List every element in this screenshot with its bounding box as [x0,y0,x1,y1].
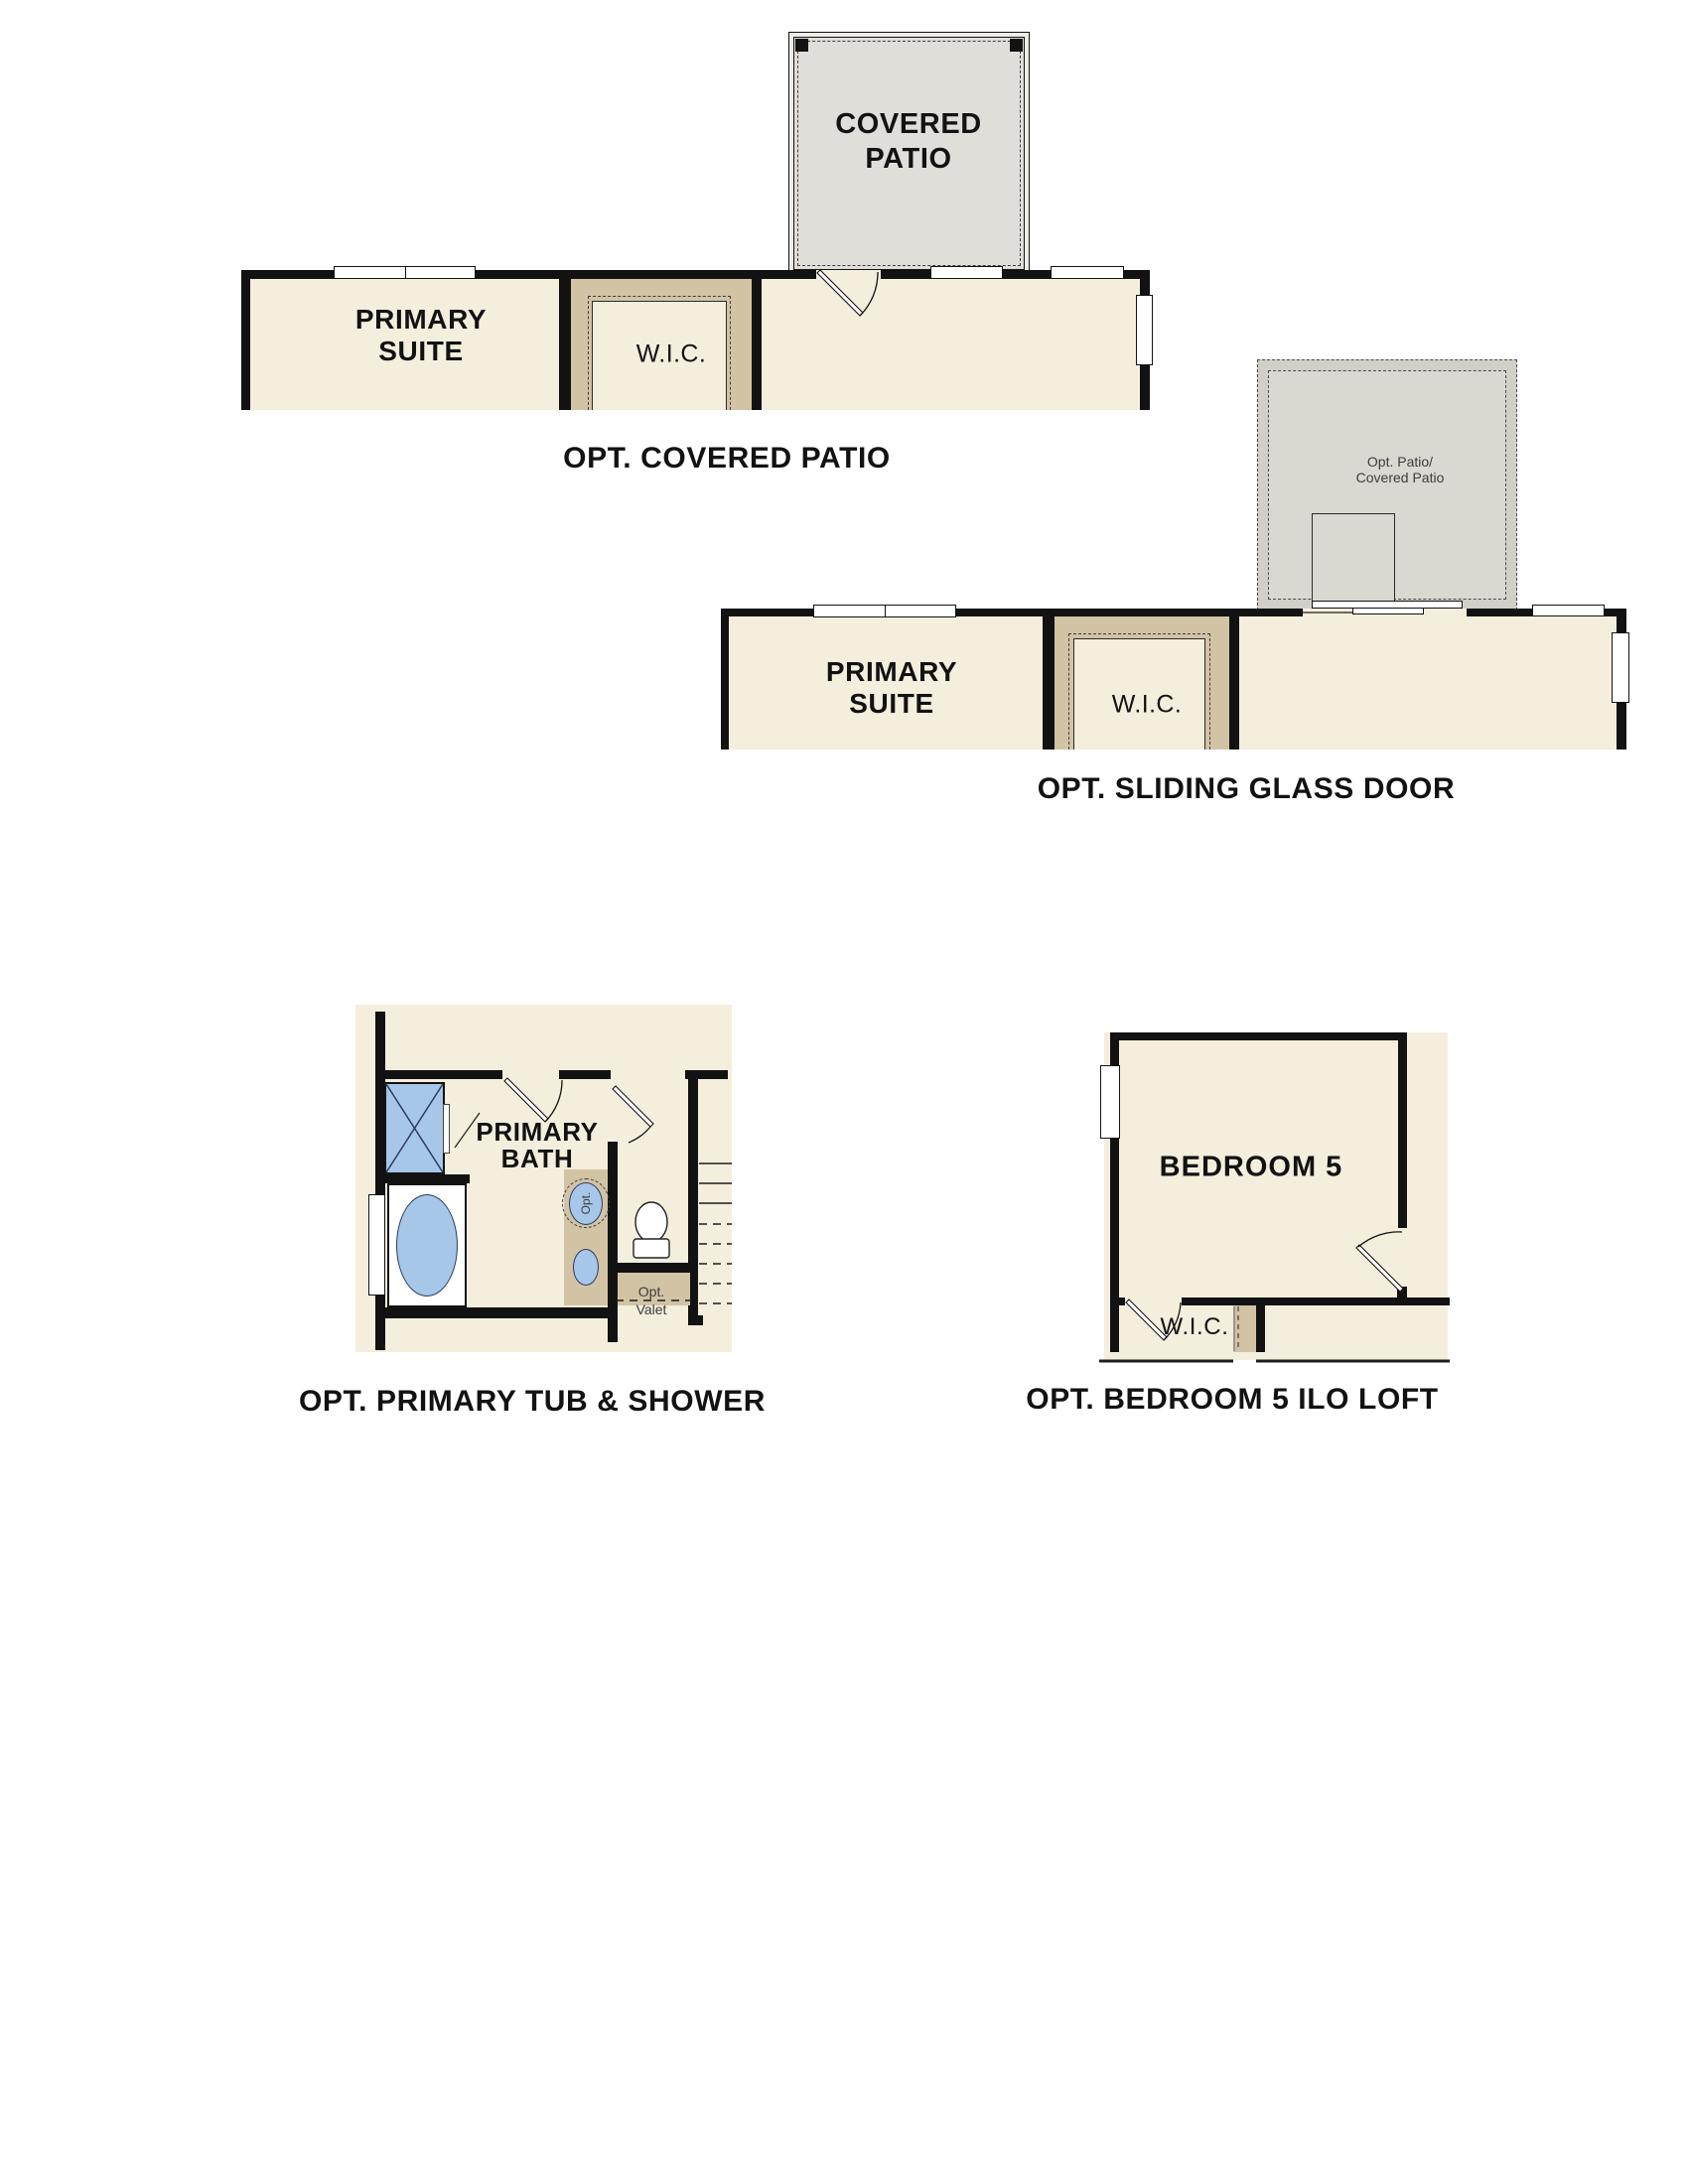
label-line: PRIMARY [826,656,957,688]
sec2-primary-suite-label: PRIMARY SUITE [826,656,957,720]
label-line: BATH [476,1146,598,1172]
opt-patio-note: Opt. Patio/ Covered Patio [1356,454,1445,485]
sec3-wall-interior [608,1142,618,1342]
sec3-window-left-wall [368,1194,385,1296]
sec1-wall-wic-room [752,279,762,410]
sec3-wall-top-b [559,1070,611,1079]
sec1-wall-suite-wic [559,279,571,410]
note-line: Opt. [636,1283,667,1300]
sec3-wall-bottom [375,1307,611,1318]
bedroom5-label: BEDROOM 5 [1160,1152,1343,1184]
label-line: SUITE [355,336,487,367]
sec4-wic-label: W.I.C. [1161,1313,1229,1341]
sec4-caption: OPT. BEDROOM 5 ILO LOFT [1026,1383,1438,1417]
sliding-door-panel-slider [1352,608,1424,614]
sec1-window-suite [334,266,476,279]
sec4-wic-door-stub [1114,1297,1125,1305]
label-line: PRIMARY [355,304,487,336]
note-line: Opt. Patio/ [1356,454,1445,470]
sec2-window-right-wall [1612,632,1629,703]
sec2-wall-wic-room [1229,616,1239,750]
sec1-window-under-patio [930,266,1003,279]
shower [384,1082,445,1174]
sec2-window-suite [813,605,956,617]
sec3-wall-under-shower [375,1174,470,1183]
sink-bottom [573,1249,599,1286]
floorplan-options-page: PRIMARY SUITE W.I.C. COVERED PATIO OPT. … [0,0,1688,2184]
sec4-wall-right [1398,1040,1407,1228]
sec1-caption: OPT. COVERED PATIO [563,442,891,476]
sec1-window-right-wall [1136,295,1153,365]
sec4-wall-lower [1256,1305,1265,1352]
patio-post-left [795,39,808,52]
sec2-caption: OPT. SLIDING GLASS DOOR [1038,772,1456,806]
sec2-window-top-right [1532,605,1605,616]
sec4-floor [1104,1032,1448,1360]
covered-patio-label: COVERED PATIO [835,107,982,177]
opt-sink-rotated-label: Opt. [579,1192,593,1215]
label-line: COVERED [835,107,982,142]
note-line: Covered Patio [1356,470,1445,485]
sec2-wic-label: W.I.C. [1112,691,1182,720]
sec4-wall-bottom [1182,1297,1450,1305]
sec1-window-top-right [1051,266,1124,279]
opt-valet-label: Opt. Valet [636,1283,667,1318]
sec2-wall-suite-wic [1043,616,1055,750]
label-line: PATIO [835,142,982,177]
sec3-wall-top-c [685,1070,728,1079]
primary-bath-label: PRIMARY BATH [476,1119,598,1172]
sec3-wall-toilet [614,1263,692,1273]
bathtub [387,1183,467,1307]
sec3-caption: OPT. PRIMARY TUB & SHOWER [299,1385,766,1419]
bathtub-basin [396,1194,458,1297]
sec4-window-left-wall [1100,1065,1120,1139]
sec1-wall-left [241,279,250,410]
patio-post-right [1010,39,1023,52]
shower-door-gap [443,1104,450,1154]
sec4-door-hinge-stub [1397,1287,1407,1297]
sec4-wall-top [1110,1032,1407,1040]
sec1-wic-label: W.I.C. [636,341,706,369]
label-line: PRIMARY [476,1119,598,1146]
note-line: Valet [636,1300,667,1318]
sec2-wall-left [721,616,729,750]
sec1-primary-suite-label: PRIMARY SUITE [355,304,487,367]
sec4-cased-opening [1233,1305,1256,1352]
sec3-wall-right-foot [688,1315,703,1325]
label-line: SUITE [826,688,957,720]
sec1-patio-door-opening [816,270,881,279]
sec3-wall-top-a [375,1070,502,1079]
sec2-patio-pad [1312,513,1395,605]
